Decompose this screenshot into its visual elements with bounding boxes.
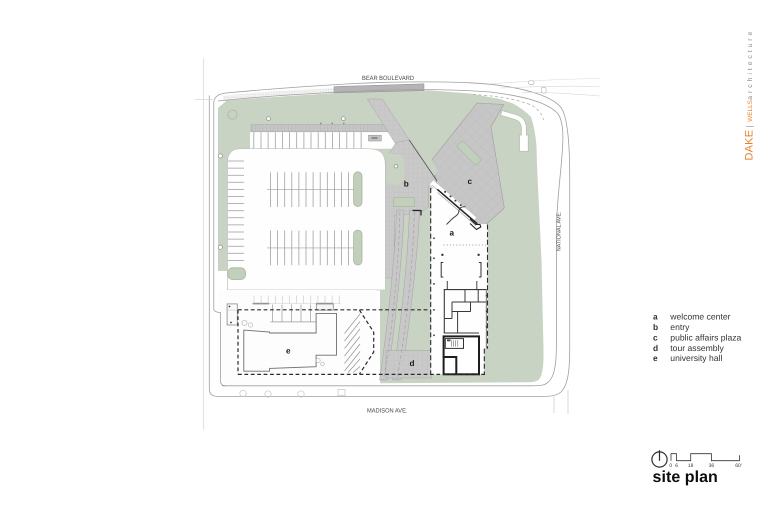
svg-text:a: a	[450, 229, 455, 238]
svg-text:a: a	[653, 312, 658, 322]
svg-text:welcome center: welcome center	[669, 312, 730, 322]
svg-text:DAKE: DAKE	[744, 130, 756, 161]
svg-text:architecture: architecture	[747, 31, 754, 99]
svg-text:e: e	[653, 353, 658, 363]
svg-text:tour assembly: tour assembly	[670, 343, 724, 353]
svg-text:36: 36	[709, 463, 715, 469]
svg-text:e: e	[286, 347, 291, 356]
svg-text:b: b	[653, 322, 658, 332]
svg-text:d: d	[653, 343, 658, 353]
svg-text:site plan: site plan	[653, 469, 718, 486]
svg-text:WELLS: WELLS	[747, 100, 754, 122]
svg-text:18: 18	[688, 463, 694, 469]
svg-text:MADISON AVE.: MADISON AVE.	[367, 408, 408, 415]
svg-text:public affairs plaza: public affairs plaza	[670, 332, 741, 342]
svg-text:d: d	[410, 359, 415, 368]
svg-text:b: b	[404, 179, 409, 188]
svg-text:entry: entry	[670, 322, 690, 332]
svg-text:0: 0	[669, 463, 672, 469]
svg-text:6: 6	[675, 463, 678, 469]
svg-text:university hall: university hall	[670, 353, 722, 363]
svg-text:BEAR BOULEVARD: BEAR BOULEVARD	[362, 75, 414, 82]
svg-text:c: c	[653, 332, 658, 342]
svg-text:NATIONAL AVE.: NATIONAL AVE.	[556, 211, 563, 251]
svg-text:|: |	[745, 126, 754, 128]
svg-text:c: c	[468, 177, 473, 186]
svg-text:60': 60'	[735, 463, 742, 469]
